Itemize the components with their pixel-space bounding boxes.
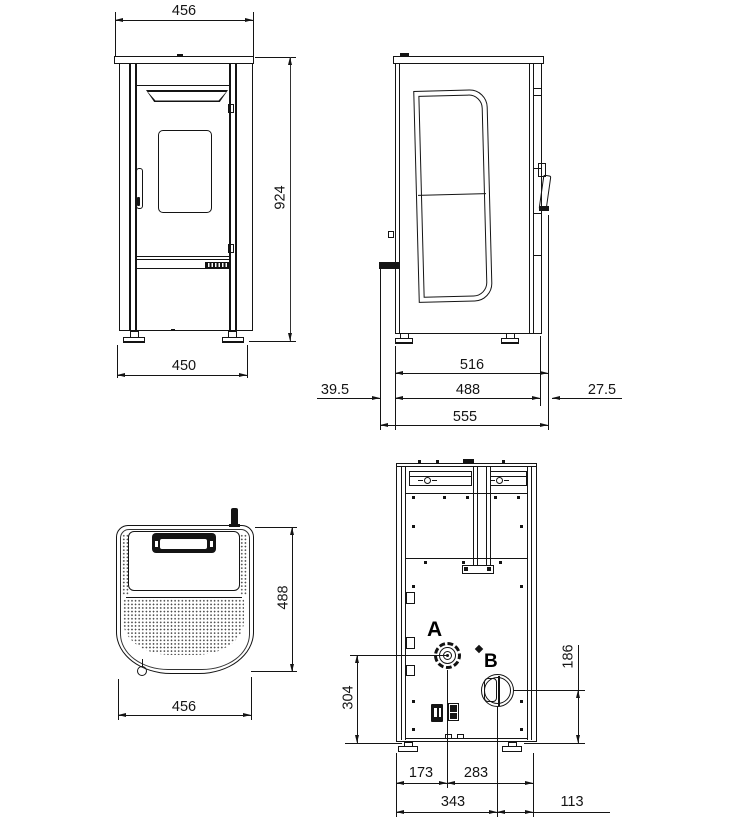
screw-tick xyxy=(418,480,423,481)
arrowhead xyxy=(576,690,580,698)
top-edge-line xyxy=(397,466,536,467)
dim-rear-a-to-right: 283 xyxy=(455,766,497,781)
extension-line xyxy=(497,707,498,817)
arrowhead xyxy=(355,655,359,663)
extension-line xyxy=(396,753,397,817)
arrowhead xyxy=(525,781,533,785)
switch-key xyxy=(450,713,457,719)
extension-line xyxy=(345,743,402,744)
dim-rear-b-to-right: 113 xyxy=(551,795,593,810)
side-panel-line xyxy=(527,467,528,740)
dim-rear-b-height: 186 xyxy=(562,636,577,678)
rear-outline xyxy=(396,463,537,742)
socket-slot xyxy=(434,708,437,717)
panel-edge-line xyxy=(406,493,527,494)
screw-dot xyxy=(412,585,415,588)
screw-tick xyxy=(491,480,495,481)
flange-bolt xyxy=(464,567,468,571)
extension-line xyxy=(513,690,585,691)
extension-line xyxy=(524,743,585,744)
screw-dot xyxy=(412,700,415,703)
panel-edge-line xyxy=(406,558,527,559)
screw-dot xyxy=(412,728,415,731)
extension-line xyxy=(447,670,448,788)
screw-dot xyxy=(466,496,469,499)
arrowhead xyxy=(576,735,580,743)
flue-channel-line xyxy=(477,467,478,565)
flange-bolt xyxy=(487,567,491,571)
extension-line xyxy=(533,753,534,817)
foot-plate xyxy=(502,746,522,752)
arrowhead xyxy=(439,781,447,785)
dim-line xyxy=(396,783,533,784)
side-bracket xyxy=(406,592,415,604)
dim-line xyxy=(357,655,358,743)
side-bracket xyxy=(406,665,415,676)
arrowhead xyxy=(525,810,533,814)
screw-dot xyxy=(462,561,465,564)
arrowhead xyxy=(396,810,404,814)
technical-drawing-canvas: 456 924 450 xyxy=(0,0,734,818)
flue-channel-line xyxy=(486,467,487,565)
side-panel-line xyxy=(401,467,402,740)
foot-plate xyxy=(398,746,418,752)
arrowhead xyxy=(497,810,505,814)
screw-head xyxy=(424,477,431,484)
screw-tick xyxy=(504,480,509,481)
screw-dot xyxy=(424,561,427,564)
side-bracket xyxy=(406,637,415,649)
screw-dot xyxy=(499,561,502,564)
dim-rear-a-height: 304 xyxy=(342,677,357,719)
port-b-label: B xyxy=(484,651,498,673)
screw-dot xyxy=(517,496,520,499)
screw-dot xyxy=(520,585,523,588)
side-panel-line xyxy=(531,467,532,740)
bottom-bump xyxy=(457,734,464,739)
screw-head xyxy=(496,477,503,484)
switch-key xyxy=(450,705,457,712)
flue-channel xyxy=(473,466,491,566)
arrowhead xyxy=(396,781,404,785)
socket-slot xyxy=(439,708,442,717)
port-a-label: A xyxy=(427,618,442,642)
flue-damper-bar xyxy=(498,676,500,706)
bottom-edge-line xyxy=(406,738,527,739)
extension-line xyxy=(350,655,447,656)
screw-dot xyxy=(520,525,523,528)
screw-dot xyxy=(412,496,415,499)
rear-view: A B 304 xyxy=(0,0,734,818)
screw-dot xyxy=(494,496,497,499)
dim-rear-left-to-b: 343 xyxy=(432,795,474,810)
bracket-line xyxy=(490,476,527,477)
screw-dot xyxy=(412,525,415,528)
screw-tick xyxy=(432,480,437,481)
arrowhead xyxy=(447,781,455,785)
arrowhead xyxy=(489,810,497,814)
screw-dot xyxy=(520,700,523,703)
screw-dot xyxy=(520,728,523,731)
flue-damper xyxy=(484,678,497,702)
dim-rear-left-to-a: 173 xyxy=(400,766,442,781)
screw-dot xyxy=(443,496,446,499)
arrowhead xyxy=(355,735,359,743)
bracket-line xyxy=(409,476,472,477)
bracket-strip xyxy=(409,471,472,486)
power-socket xyxy=(431,704,443,722)
